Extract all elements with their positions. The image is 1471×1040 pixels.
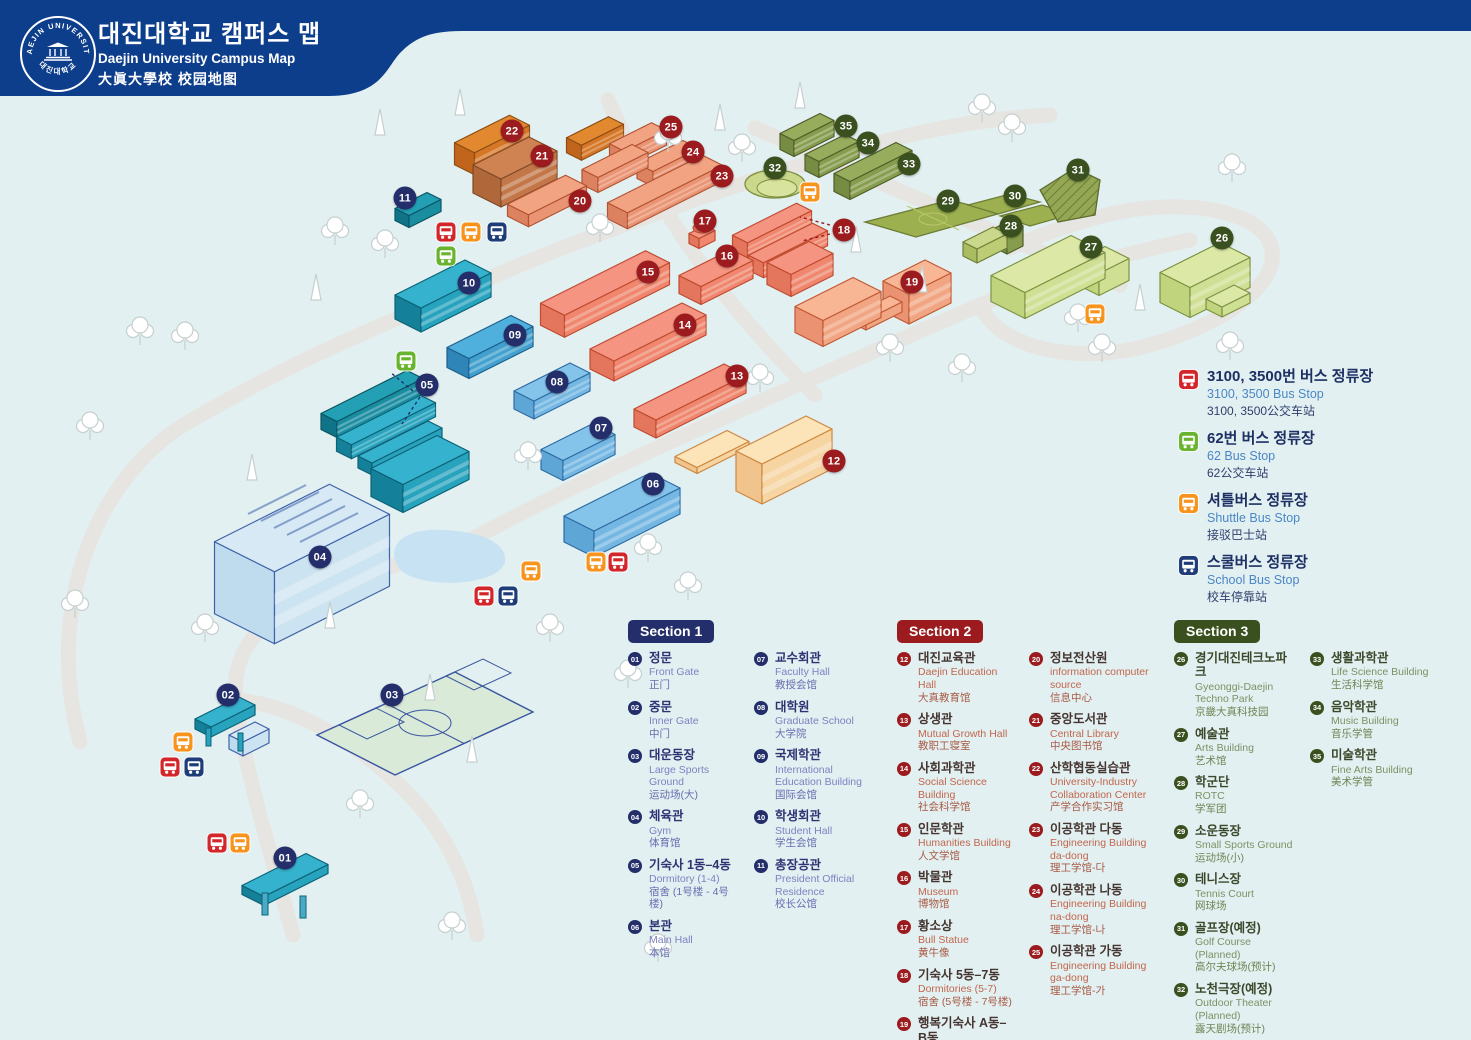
building-number-badge: 26 bbox=[1174, 652, 1188, 666]
building-list-item: 26 경기대진테크노파크 Gyeonggi-Daejin Techno Park… bbox=[1174, 651, 1296, 719]
building-name-ko: 중문 bbox=[649, 700, 740, 714]
building-name-ko: 정문 bbox=[649, 651, 740, 665]
building-name-en: Fine Arts Building bbox=[1331, 764, 1460, 777]
svg-text:DAEJIN UNIVERSITY: DAEJIN UNIVERSITY bbox=[18, 14, 91, 55]
building-list-item: 27 예술관 Arts Building 艺术馆 bbox=[1174, 727, 1296, 768]
building-name-ko: 중앙도서관 bbox=[1050, 712, 1157, 726]
building-name-ko: 기숙사 5동–7동 bbox=[918, 968, 1015, 982]
building-number-badge: 12 bbox=[897, 652, 911, 666]
map-marker-29: 29 bbox=[937, 190, 960, 213]
section-1-panel: Section 101 정문 Front Gate 正门02 중문 Inner … bbox=[628, 620, 872, 968]
building-name-zh: 黄牛像 bbox=[918, 947, 1015, 960]
building-name-zh: 信息中心 bbox=[1050, 692, 1157, 705]
legend-item: 3100, 3500번 버스 정류장 3100, 3500 Bus Stop 3… bbox=[1178, 368, 1471, 419]
bus-stop-navy-icon bbox=[498, 586, 519, 607]
map-marker-22: 22 bbox=[501, 120, 524, 143]
map-marker-34: 34 bbox=[857, 132, 880, 155]
building-name-zh: 宿舍 (1号楼 - 4号楼) bbox=[649, 886, 740, 911]
legend-label-zh: 62公交车站 bbox=[1207, 464, 1315, 481]
map-marker-03: 03 bbox=[381, 684, 404, 707]
bus-stop-red-icon bbox=[608, 552, 629, 573]
bus-stop-navy-icon bbox=[184, 757, 205, 778]
building-name-ko: 기숙사 1동–4동 bbox=[649, 858, 740, 872]
building-number-badge: 33 bbox=[1310, 652, 1324, 666]
building-name-ko: 산학협동실습관 bbox=[1050, 761, 1157, 775]
building-name-en: information computer source bbox=[1050, 666, 1157, 691]
building-list-item: 30 테니스장 Tennis Court 网球场 bbox=[1174, 872, 1296, 913]
bus-stop-orange-icon bbox=[800, 182, 821, 203]
building-name-zh: 大学院 bbox=[775, 728, 872, 741]
building-name-zh: 校长公馆 bbox=[775, 898, 872, 911]
building-name-en: Outdoor Theater (Planned) bbox=[1195, 997, 1296, 1022]
building-name-en: President Official Residence bbox=[775, 873, 872, 898]
building-name-en: Gyeonggi-Daejin Techno Park bbox=[1195, 681, 1296, 706]
building-number-badge: 04 bbox=[628, 810, 642, 824]
map-marker-16: 16 bbox=[716, 245, 739, 268]
building-name-ko: 테니스장 bbox=[1195, 872, 1296, 886]
bus-stop-green-icon bbox=[396, 351, 417, 372]
map-marker-07: 07 bbox=[590, 417, 613, 440]
bus-stop-orange-icon bbox=[461, 222, 482, 243]
building-name-zh: 博物馆 bbox=[918, 898, 1015, 911]
building-name-ko: 경기대진테크노파크 bbox=[1195, 651, 1296, 680]
building-name-en: Bull Statue bbox=[918, 934, 1015, 947]
building-number-badge: 30 bbox=[1174, 873, 1188, 887]
map-marker-10: 10 bbox=[458, 272, 481, 295]
building-number-badge: 17 bbox=[897, 920, 911, 934]
building-list-item: 01 정문 Front Gate 正门 bbox=[628, 651, 740, 692]
building-name-ko: 본관 bbox=[649, 919, 740, 933]
map-marker-02: 02 bbox=[217, 684, 240, 707]
bus-green-icon bbox=[1178, 431, 1199, 452]
building-name-ko: 박물관 bbox=[918, 870, 1015, 884]
map-marker-31: 31 bbox=[1067, 159, 1090, 182]
building-name-zh: 网球场 bbox=[1195, 900, 1296, 913]
building-name-ko: 이공학관 나동 bbox=[1050, 883, 1157, 897]
building-name-ko: 학군단 bbox=[1195, 775, 1296, 789]
bus-stop-red-icon bbox=[207, 833, 228, 854]
building-number-badge: 31 bbox=[1174, 922, 1188, 936]
building-list-item: 33 생활과학관 Life Science Building 生活科学馆 bbox=[1310, 651, 1460, 692]
building-list-item: 19 행복기숙사 A동–B동 Happy Dormitory (A, B) 幸福… bbox=[897, 1016, 1015, 1040]
building-list-item: 10 학생회관 Student Hall 学生会馆 bbox=[754, 809, 872, 850]
building-name-zh: 运动场(小) bbox=[1195, 852, 1296, 865]
map-marker-28: 28 bbox=[1000, 215, 1023, 238]
bus-stop-orange-icon bbox=[173, 732, 194, 753]
building-name-zh: 艺术馆 bbox=[1195, 755, 1296, 768]
building-list-item: 21 중앙도서관 Central Library 中央图书馆 bbox=[1029, 712, 1157, 753]
building-name-zh: 美术学管 bbox=[1331, 776, 1460, 789]
map-marker-30: 30 bbox=[1004, 185, 1027, 208]
building-name-zh: 正门 bbox=[649, 679, 740, 692]
building-list-item: 12 대진교육관 Daejin Education Hall 大真教育馆 bbox=[897, 651, 1015, 704]
map-marker-25: 25 bbox=[660, 116, 683, 139]
building-name-zh: 京畿大真科技园 bbox=[1195, 706, 1296, 719]
legend-item: 셔틀버스 정류장 Shuttle Bus Stop 接驳巴士站 bbox=[1178, 492, 1471, 543]
building-name-zh: 教授会馆 bbox=[775, 679, 872, 692]
building-name-en: Tennis Court bbox=[1195, 888, 1296, 901]
building-list-item: 24 이공학관 나동 Engineering Building na-dong … bbox=[1029, 883, 1157, 936]
building-list-item: 05 기숙사 1동–4동 Dormitory (1-4) 宿舍 (1号楼 - 4… bbox=[628, 858, 740, 911]
building-name-en: Graduate School bbox=[775, 715, 872, 728]
building-name-en: Large Sports Ground bbox=[649, 764, 740, 789]
map-marker-26: 26 bbox=[1211, 227, 1234, 250]
building-number-badge: 08 bbox=[754, 701, 768, 715]
map-marker-17: 17 bbox=[694, 210, 717, 233]
bus-stop-red-icon bbox=[436, 222, 457, 243]
building-name-en: Main Hall bbox=[649, 934, 740, 947]
map-marker-27: 27 bbox=[1080, 236, 1103, 259]
logo-text-bottom: 대진대학교 bbox=[37, 59, 79, 76]
map-marker-32: 32 bbox=[764, 157, 787, 180]
building-number-badge: 14 bbox=[897, 762, 911, 776]
building-list-item: 23 이공학관 다동 Engineering Building da-dong … bbox=[1029, 822, 1157, 875]
building-list-item: 11 총장공관 President Official Residence 校长公… bbox=[754, 858, 872, 911]
bus-stop-green-icon bbox=[436, 246, 457, 267]
bus-stop-red-icon bbox=[160, 757, 181, 778]
building-name-en: Daejin Education Hall bbox=[918, 666, 1015, 691]
bus-stop-navy-icon bbox=[487, 222, 508, 243]
map-marker-21: 21 bbox=[531, 145, 554, 168]
building-list-item: 08 대학원 Graduate School 大学院 bbox=[754, 700, 872, 741]
map-marker-33: 33 bbox=[898, 153, 921, 176]
building-name-ko: 인문학관 bbox=[918, 822, 1015, 836]
building-name-zh: 中门 bbox=[649, 728, 740, 741]
building-number-badge: 15 bbox=[897, 823, 911, 837]
building-name-en: Engineering Building ga-dong bbox=[1050, 960, 1157, 985]
building-name-zh: 社会科学馆 bbox=[918, 801, 1015, 814]
section-1-title: Section 1 bbox=[628, 620, 714, 643]
building-name-en: Student Hall bbox=[775, 825, 872, 838]
legend-label-en: 3100, 3500 Bus Stop bbox=[1207, 387, 1373, 401]
building-name-ko: 소운동장 bbox=[1195, 824, 1296, 838]
section-2-title: Section 2 bbox=[897, 620, 983, 643]
bus-stop-orange-icon bbox=[230, 833, 251, 854]
building-list-item: 34 음악학관 Music Building 音乐学管 bbox=[1310, 700, 1460, 741]
building-list-item: 32 노천극장(예정) Outdoor Theater (Planned) 露天… bbox=[1174, 982, 1296, 1035]
building-list-item: 03 대운동장 Large Sports Ground 运动场(大) bbox=[628, 748, 740, 801]
building-list-item: 07 교수회관 Faculty Hall 教授会馆 bbox=[754, 651, 872, 692]
legend-item: 62번 버스 정류장 62 Bus Stop 62公交车站 bbox=[1178, 430, 1471, 481]
map-marker-05: 05 bbox=[416, 374, 439, 397]
building-name-en: ROTC bbox=[1195, 790, 1296, 803]
building-name-en: Engineering Building na-dong bbox=[1050, 898, 1157, 923]
building-list-item: 22 산학협동실습관 University-Industry Collabora… bbox=[1029, 761, 1157, 814]
building-name-ko: 사회과학관 bbox=[918, 761, 1015, 775]
map-marker-13: 13 bbox=[726, 365, 749, 388]
building-name-ko: 교수회관 bbox=[775, 651, 872, 665]
bus-red-icon bbox=[1178, 369, 1199, 390]
bus-stop-orange-icon bbox=[586, 552, 607, 573]
bus-stop-orange-icon bbox=[521, 561, 542, 582]
legend-label-ko: 스쿨버스 정류장 bbox=[1207, 554, 1308, 572]
section-3-panel: Section 326 경기대진테크노파크 Gyeonggi-Daejin Te… bbox=[1174, 620, 1460, 1040]
building-name-zh: 国际会馆 bbox=[775, 789, 872, 802]
building-name-ko: 음악학관 bbox=[1331, 700, 1460, 714]
building-name-en: Humanities Building bbox=[918, 837, 1015, 850]
building-name-ko: 이공학관 가동 bbox=[1050, 944, 1157, 958]
legend-label-ko: 셔틀버스 정류장 bbox=[1207, 492, 1308, 510]
building-number-badge: 02 bbox=[628, 701, 642, 715]
map-marker-01: 01 bbox=[274, 847, 297, 870]
building-name-en: Small Sports Ground bbox=[1195, 839, 1296, 852]
map-marker-11: 11 bbox=[394, 187, 417, 210]
building-name-ko: 행복기숙사 A동–B동 bbox=[918, 1016, 1015, 1040]
building-name-ko: 학생회관 bbox=[775, 809, 872, 823]
building-name-zh: 学军团 bbox=[1195, 803, 1296, 816]
building-list-item: 18 기숙사 5동–7동 Dormitories (5-7) 宿舍 (5号楼 -… bbox=[897, 968, 1015, 1009]
building-number-badge: 09 bbox=[754, 749, 768, 763]
building-name-en: Music Building bbox=[1331, 715, 1460, 728]
building-name-zh: 运动场(大) bbox=[649, 789, 740, 802]
building-name-en: Life Science Building bbox=[1331, 666, 1460, 679]
building-number-badge: 13 bbox=[897, 713, 911, 727]
building-number-badge: 07 bbox=[754, 652, 768, 666]
map-marker-35: 35 bbox=[835, 115, 858, 138]
building-name-ko: 대학원 bbox=[775, 700, 872, 714]
page-title-chinese: 大眞大學校 校园地图 bbox=[98, 69, 321, 89]
bus-stop-orange-icon bbox=[1085, 304, 1106, 325]
building-number-badge: 29 bbox=[1174, 825, 1188, 839]
building-number-badge: 16 bbox=[897, 871, 911, 885]
building-name-ko: 생활과학관 bbox=[1331, 651, 1460, 665]
legend-label-en: 62 Bus Stop bbox=[1207, 449, 1315, 463]
bus-orange-icon bbox=[1178, 493, 1199, 514]
legend-item: 스쿨버스 정류장 School Bus Stop 校车停靠站 bbox=[1178, 554, 1471, 605]
building-name-zh: 露天剧场(预计) bbox=[1195, 1023, 1296, 1036]
building-name-zh: 高尔夫球场(预计) bbox=[1195, 961, 1296, 974]
page-title-korean: 대진대학교 캠퍼스 맵 bbox=[98, 22, 321, 48]
building-number-badge: 35 bbox=[1310, 749, 1324, 763]
section-3-title: Section 3 bbox=[1174, 620, 1260, 643]
building-number-badge: 01 bbox=[628, 652, 642, 666]
building-number-badge: 25 bbox=[1029, 945, 1043, 959]
building-list-item: 15 인문학관 Humanities Building 人文学馆 bbox=[897, 822, 1015, 863]
legend-label-zh: 接驳巴士站 bbox=[1207, 526, 1308, 543]
map-marker-06: 06 bbox=[642, 473, 665, 496]
building-name-ko: 이공학관 다동 bbox=[1050, 822, 1157, 836]
building-name-en: University-Industry Collaboration Center bbox=[1050, 776, 1157, 801]
section-2-panel: Section 212 대진교육관 Daejin Education Hall … bbox=[897, 620, 1157, 1040]
building-name-en: Arts Building bbox=[1195, 742, 1296, 755]
building-name-zh: 理工学馆-다 bbox=[1050, 862, 1157, 875]
map-marker-24: 24 bbox=[682, 141, 705, 164]
building-number-badge: 11 bbox=[754, 859, 768, 873]
building-name-zh: 理工学馆-나 bbox=[1050, 924, 1157, 937]
building-name-en: Dormitories (5-7) bbox=[918, 983, 1015, 996]
bus-navy-icon bbox=[1178, 555, 1199, 576]
building-number-badge: 27 bbox=[1174, 728, 1188, 742]
legend-label-zh: 3100, 3500公交车站 bbox=[1207, 402, 1373, 419]
legend-label-en: School Bus Stop bbox=[1207, 573, 1308, 587]
building-name-zh: 中央图书馆 bbox=[1050, 740, 1157, 753]
map-marker-12: 12 bbox=[823, 450, 846, 473]
building-name-zh: 学生会馆 bbox=[775, 837, 872, 850]
map-marker-23: 23 bbox=[711, 165, 734, 188]
building-list-item: 20 정보전산원 information computer source 信息中… bbox=[1029, 651, 1157, 704]
building-name-en: Inner Gate bbox=[649, 715, 740, 728]
building-name-ko: 대진교육관 bbox=[918, 651, 1015, 665]
building-name-en: Engineering Building da-dong bbox=[1050, 837, 1157, 862]
building-number-badge: 03 bbox=[628, 749, 642, 763]
building-number-badge: 06 bbox=[628, 920, 642, 934]
building-name-zh: 人文学馆 bbox=[918, 850, 1015, 863]
building-name-en: Gym bbox=[649, 825, 740, 838]
building-name-en: Faculty Hall bbox=[775, 666, 872, 679]
building-list-item: 25 이공학관 가동 Engineering Building ga-dong … bbox=[1029, 944, 1157, 997]
map-marker-08: 08 bbox=[546, 371, 569, 394]
building-name-zh: 教职工寝室 bbox=[918, 740, 1015, 753]
building-name-zh: 音乐学管 bbox=[1331, 728, 1460, 741]
logo-text-top: DAEJIN UNIVERSITY bbox=[18, 14, 91, 55]
building-name-en: Golf Course (Planned) bbox=[1195, 936, 1296, 961]
building-list-item: 35 미술학관 Fine Arts Building 美术学管 bbox=[1310, 748, 1460, 789]
building-number-badge: 28 bbox=[1174, 776, 1188, 790]
map-marker-14: 14 bbox=[674, 314, 697, 337]
building-name-en: Front Gate bbox=[649, 666, 740, 679]
page-title-english: Daejin University Campus Map bbox=[98, 51, 321, 66]
building-number-badge: 05 bbox=[628, 859, 642, 873]
building-number-badge: 24 bbox=[1029, 884, 1043, 898]
building-name-zh: 本馆 bbox=[649, 947, 740, 960]
legend-label-ko: 62번 버스 정류장 bbox=[1207, 430, 1315, 448]
building-name-en: Mutual Growth Hall bbox=[918, 728, 1015, 741]
building-number-badge: 10 bbox=[754, 810, 768, 824]
building-name-ko: 상생관 bbox=[918, 712, 1015, 726]
building-name-en: Museum bbox=[918, 886, 1015, 899]
building-list-item: 06 본관 Main Hall 本馆 bbox=[628, 919, 740, 960]
building-number-badge: 19 bbox=[897, 1017, 911, 1031]
building-name-zh: 生活科学馆 bbox=[1331, 679, 1460, 692]
building-list-item: 09 국제학관 International Education Building… bbox=[754, 748, 872, 801]
building-name-ko: 총장공관 bbox=[775, 858, 872, 872]
map-marker-20: 20 bbox=[569, 190, 592, 213]
building-number-badge: 23 bbox=[1029, 823, 1043, 837]
building-list-item: 14 사회과학관 Social Science Building 社会科学馆 bbox=[897, 761, 1015, 814]
building-name-en: Dormitory (1-4) bbox=[649, 873, 740, 886]
building-list-item: 29 소운동장 Small Sports Ground 运动场(小) bbox=[1174, 824, 1296, 865]
building-name-ko: 정보전산원 bbox=[1050, 651, 1157, 665]
legend-label-ko: 3100, 3500번 버스 정류장 bbox=[1207, 368, 1373, 386]
building-name-zh: 大真教育馆 bbox=[918, 692, 1015, 705]
building-number-badge: 21 bbox=[1029, 713, 1043, 727]
building-list-item: 17 황소상 Bull Statue 黄牛像 bbox=[897, 919, 1015, 960]
building-name-zh: 体育馆 bbox=[649, 837, 740, 850]
building-name-zh: 理工学馆-가 bbox=[1050, 985, 1157, 998]
bus-stop-red-icon bbox=[474, 586, 495, 607]
building-number-badge: 20 bbox=[1029, 652, 1043, 666]
building-name-ko: 노천극장(예정) bbox=[1195, 982, 1296, 996]
building-name-zh: 产学合作实习馆 bbox=[1050, 801, 1157, 814]
legend-label-en: Shuttle Bus Stop bbox=[1207, 511, 1308, 525]
svg-text:대진대학교: 대진대학교 bbox=[37, 59, 79, 76]
building-name-ko: 예술관 bbox=[1195, 727, 1296, 741]
campus-map-page: DAEJIN UNIVERSITY 대진대학교 대진대학교 캠퍼스 맵 Daej… bbox=[0, 0, 1471, 1040]
building-list-item: 31 골프장(예정) Golf Course (Planned) 高尔夫球场(预… bbox=[1174, 921, 1296, 974]
building-name-ko: 체육관 bbox=[649, 809, 740, 823]
building-name-ko: 국제학관 bbox=[775, 748, 872, 762]
building-number-badge: 18 bbox=[897, 969, 911, 983]
building-number-badge: 32 bbox=[1174, 983, 1188, 997]
building-name-ko: 미술학관 bbox=[1331, 748, 1460, 762]
building-name-en: Central Library bbox=[1050, 728, 1157, 741]
building-list-item: 13 상생관 Mutual Growth Hall 教职工寝室 bbox=[897, 712, 1015, 753]
map-marker-15: 15 bbox=[637, 261, 660, 284]
building-number-badge: 22 bbox=[1029, 762, 1043, 776]
building-list-item: 02 중문 Inner Gate 中门 bbox=[628, 700, 740, 741]
building-list-item: 04 체육관 Gym 体育馆 bbox=[628, 809, 740, 850]
header-titles: 대진대학교 캠퍼스 맵 Daejin University Campus Map… bbox=[98, 22, 321, 89]
building-number-badge: 34 bbox=[1310, 701, 1324, 715]
building-name-ko: 골프장(예정) bbox=[1195, 921, 1296, 935]
map-marker-19: 19 bbox=[901, 271, 924, 294]
building-name-en: International Education Building bbox=[775, 764, 872, 789]
building-list-item: 16 박물관 Museum 博物馆 bbox=[897, 870, 1015, 911]
university-logo: DAEJIN UNIVERSITY 대진대학교 bbox=[18, 14, 98, 94]
building-name-zh: 宿舍 (5号楼 - 7号楼) bbox=[918, 996, 1015, 1009]
logo-building-glyph bbox=[44, 43, 72, 61]
map-marker-18: 18 bbox=[833, 219, 856, 242]
building-name-ko: 대운동장 bbox=[649, 748, 740, 762]
building-name-ko: 황소상 bbox=[918, 919, 1015, 933]
map-marker-04: 04 bbox=[309, 546, 332, 569]
map-marker-09: 09 bbox=[504, 324, 527, 347]
bus-legend: 3100, 3500번 버스 정류장 3100, 3500 Bus Stop 3… bbox=[1178, 368, 1471, 616]
legend-label-zh: 校车停靠站 bbox=[1207, 588, 1308, 605]
building-name-en: Social Science Building bbox=[918, 776, 1015, 801]
building-list-item: 28 학군단 ROTC 学军团 bbox=[1174, 775, 1296, 816]
